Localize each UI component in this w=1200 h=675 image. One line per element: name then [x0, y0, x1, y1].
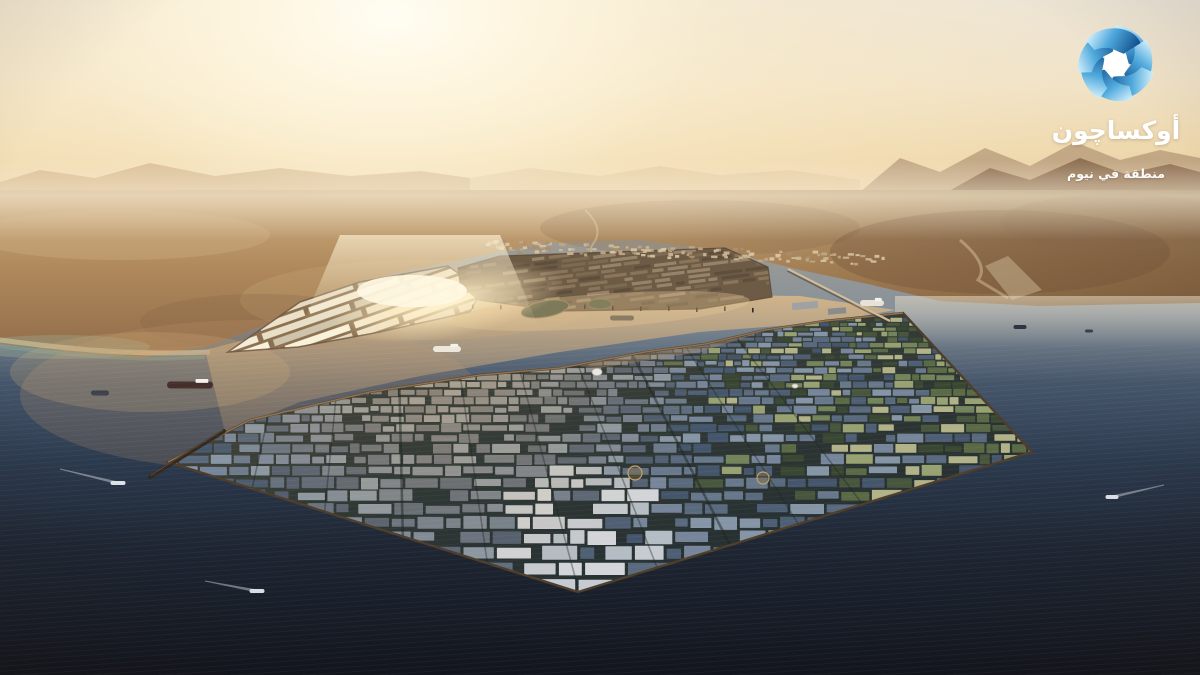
brand-lockup: أوكساچون منطقة في نيوم: [1054, 20, 1178, 181]
brand-wordmark: أوكساچون: [1052, 117, 1181, 145]
scene-art: [0, 0, 1200, 675]
oxagon-aerial-render: أوكساچون منطقة في نيوم: [0, 0, 1200, 675]
oxagon-logo-icon: [1072, 20, 1160, 108]
brand-tagline: منطقة في نيوم: [1067, 166, 1165, 181]
